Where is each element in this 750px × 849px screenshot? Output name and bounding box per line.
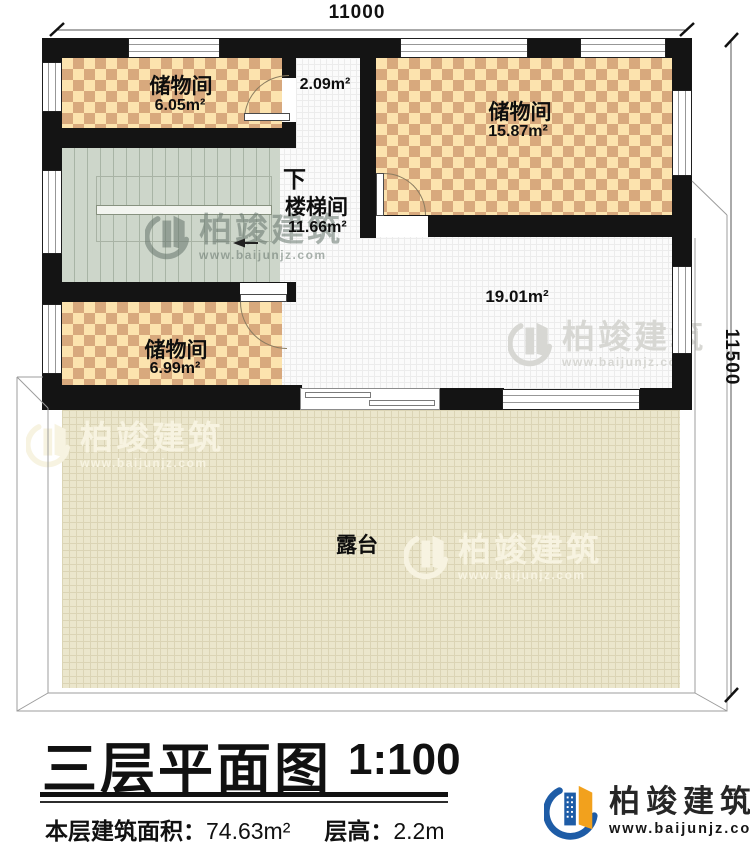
room-label-storage-c: 储物间 xyxy=(145,340,208,362)
company-logo-icon xyxy=(544,778,600,845)
room-label-storage-b: 储物间 xyxy=(489,102,552,124)
room-area-storage-b: 15.87m² xyxy=(488,124,548,141)
title-underline-thick xyxy=(40,792,448,797)
window xyxy=(672,90,692,176)
floor-height-label: 层高： xyxy=(324,818,393,844)
plan-scale: 1:100 xyxy=(348,735,461,785)
wall-storage-c-bottom xyxy=(42,385,302,410)
wall-hallway-right xyxy=(360,58,376,238)
company-website: www.baijunjz.com xyxy=(609,821,750,837)
door-opening-storage-b xyxy=(376,216,428,237)
window xyxy=(502,389,640,410)
company-name: 柏竣建筑 xyxy=(609,786,750,817)
room-area-hall: 19.01m² xyxy=(485,288,548,306)
room-area-storage-c: 6.99m² xyxy=(150,361,201,378)
room-label-stair: 楼梯间 xyxy=(285,197,348,219)
sliding-door-panel xyxy=(369,400,435,406)
floor-area-label: 本层建筑面积： xyxy=(45,818,206,844)
room-area-stair: 11.66m² xyxy=(288,220,347,237)
floor-area-value: 74.63m² xyxy=(206,818,290,844)
wall-hall-bottom-left xyxy=(440,388,504,410)
stair-handrail xyxy=(96,205,272,215)
floor-plan-page: 柏竣建筑 www.baijunjz.com 柏竣建筑 www.baijunjz.… xyxy=(0,0,750,849)
sliding-door-panel xyxy=(305,392,371,398)
room-area-storage-a: 6.05m² xyxy=(155,98,206,115)
dimension-top-label: 11000 xyxy=(329,2,386,24)
window xyxy=(42,170,62,254)
dimension-right-label: 11500 xyxy=(720,329,742,386)
room-label-storage-a: 储物间 xyxy=(150,76,213,98)
door-leaf-storage-c xyxy=(240,294,287,302)
door-leaf-storage-b xyxy=(376,173,384,216)
title-underline-thin xyxy=(40,801,448,803)
window xyxy=(128,38,220,58)
wall-storage-a-bottom xyxy=(62,128,296,148)
plan-info-line: 本层建筑面积：74.63m²层高：2.2m xyxy=(45,812,445,846)
stair-down-label: 下 xyxy=(283,167,306,191)
company-logo: 柏竣建筑 www.baijunjz.com xyxy=(544,778,750,845)
floor-height-value: 2.2m xyxy=(393,818,444,844)
window xyxy=(42,304,62,374)
window xyxy=(580,38,666,58)
room-area-hallway: 2.09m² xyxy=(300,77,351,94)
wall-hall-bottom-right xyxy=(640,388,692,410)
sliding-door xyxy=(300,388,440,410)
window xyxy=(672,266,692,354)
door-leaf-storage-a xyxy=(244,113,290,121)
room-label-terrace: 露台 xyxy=(336,535,378,557)
window xyxy=(42,62,62,112)
window xyxy=(400,38,528,58)
